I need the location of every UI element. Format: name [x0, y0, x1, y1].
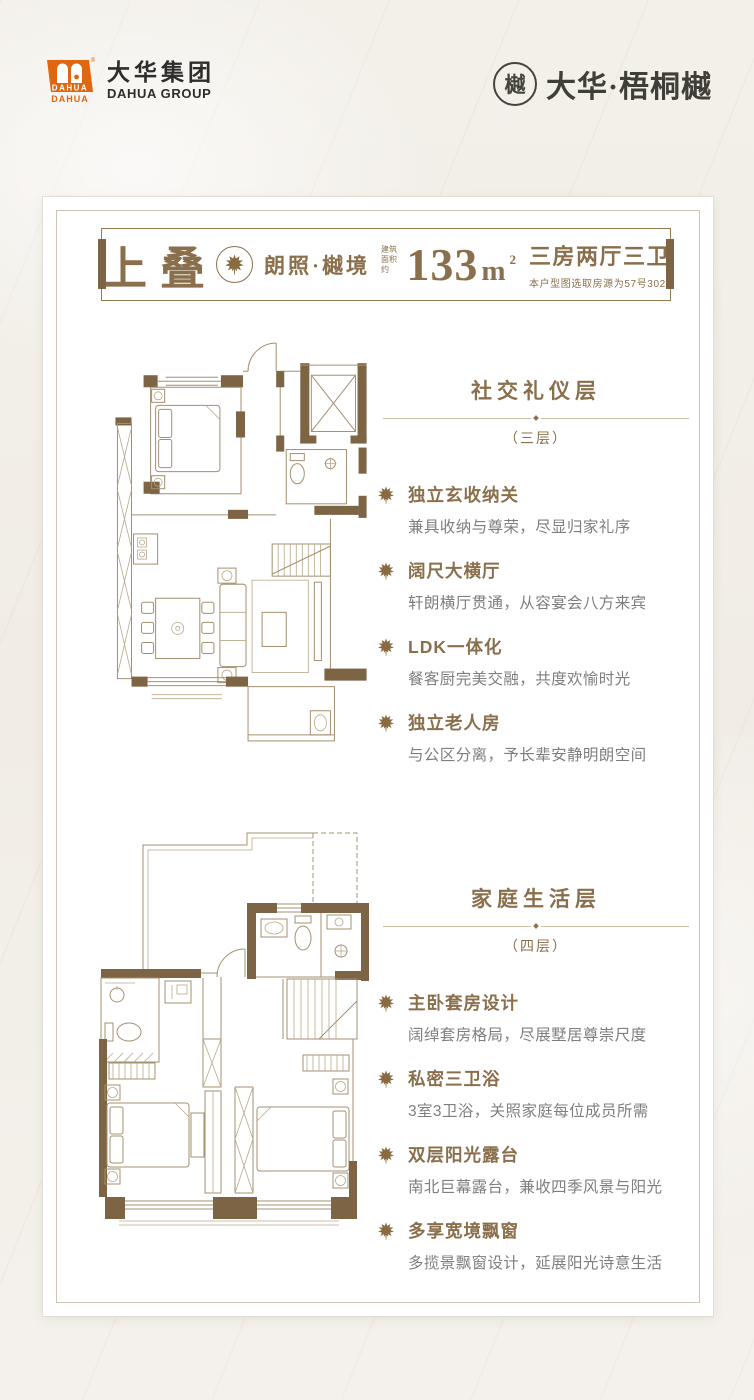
bed — [156, 405, 220, 471]
feature-item: 主卧套房设计 阔绰套房格局，尽展墅居尊崇尺度 — [377, 990, 695, 1045]
feature-title: 独立老人房 — [408, 710, 501, 735]
stairs-4f — [283, 979, 357, 1039]
bay-windows-4f — [105, 1197, 357, 1225]
feature-desc: 阔绰套房格局，尽展墅居尊崇尺度 — [408, 1023, 695, 1045]
floor-plan-3f — [107, 327, 367, 761]
feature-item: 多享宽境飘窗 多揽景飘窗设计，延展阳光诗意生活 — [377, 1218, 695, 1273]
leaf-bullet-icon — [377, 1222, 395, 1240]
area-superscript: 2 — [509, 252, 516, 268]
feature-item: 独立玄收纳关 兼具收纳与尊荣，尽显归家礼序 — [377, 482, 695, 537]
series-name: 朗照·樾境 — [264, 250, 370, 280]
side-window-strip — [115, 417, 131, 678]
feature-desc: 餐客厨完美交融，共度欢愉时光 — [408, 667, 695, 689]
dahua-logo-icon: DAHUA ® DAHUA — [44, 56, 96, 104]
entry-door — [243, 343, 300, 371]
title-banner: 上叠 朗照·樾境 建筑 面积约 133 m 2 三房两厅三卫 本户型图选取房源为… — [101, 228, 671, 301]
feature-title: 独立玄收纳关 — [408, 482, 519, 507]
section-title: 家庭生活层 — [377, 883, 695, 913]
feature-title: LDK一体化 — [408, 634, 502, 659]
floor-plan-4f — [95, 817, 381, 1259]
area-group: 建筑 面积约 133 m 2 — [381, 245, 516, 284]
svg-text:®: ® — [91, 57, 96, 64]
bathrooms-4f — [247, 903, 369, 981]
elevator — [300, 363, 366, 443]
balcony-3f — [132, 669, 367, 741]
feature-desc: 南北巨幕露台，兼收四季风景与阳光 — [408, 1175, 695, 1197]
dahua-name-en: DAHUA GROUP — [107, 87, 215, 101]
dahua-group-logo: DAHUA ® DAHUA 大华集团 DAHUA GROUP — [44, 56, 215, 104]
feature-item: LDK一体化 餐客厨完美交融，共度欢愉时光 — [377, 634, 695, 689]
bedroom-elder — [144, 375, 245, 494]
dining-table — [142, 598, 214, 658]
floor-label: （四层） — [377, 936, 695, 956]
feature-title: 主卧套房设计 — [408, 990, 519, 1015]
living-room — [218, 519, 331, 683]
leaf-bullet-icon — [377, 1070, 395, 1088]
leaf-badge-icon — [216, 246, 253, 283]
section-social-floor: 社交礼仪层 （三层） 独立玄收纳关 兼具收纳与尊荣，尽显归家礼序 阔尺大横厅 — [377, 375, 695, 786]
section-title: 社交礼仪层 — [377, 375, 695, 405]
poster-page: DAHUA ® DAHUA 大华集团 DAHUA GROUP 樾 大华·梧桐樾 … — [0, 0, 754, 1400]
svg-text:DAHUA: DAHUA — [51, 94, 89, 104]
floor-label: （三层） — [377, 428, 695, 448]
leaf-bullet-icon — [377, 994, 395, 1012]
feature-title: 阔尺大横厅 — [408, 558, 501, 583]
area-prefix: 建筑 面积约 — [381, 245, 403, 275]
feature-desc: 3室3卫浴，关照家庭每位成员所需 — [408, 1099, 695, 1121]
feature-item: 阔尺大横厅 轩朗横厅贯通，从容宴会八方来宾 — [377, 558, 695, 613]
stairs-3f — [272, 544, 330, 576]
leaf-bullet-icon — [377, 562, 395, 580]
divider — [383, 924, 689, 928]
feature-item: 独立老人房 与公区分离，予长辈安静明朗空间 — [377, 710, 695, 765]
section-family-floor: 家庭生活层 （四层） 主卧套房设计 阔绰套房格局，尽展墅居尊崇尺度 私密三卫浴 — [377, 883, 695, 1294]
leaf-bullet-icon — [377, 638, 395, 656]
area-unit: m — [481, 258, 505, 284]
feature-desc: 兼具收纳与尊荣，尽显归家礼序 — [408, 515, 695, 537]
product-type-label: 上叠 — [102, 232, 218, 297]
feature-desc: 轩朗横厅贯通，从容宴会八方来宾 — [408, 591, 695, 613]
feature-desc: 多揽景飘窗设计，延展阳光诗意生活 — [408, 1251, 695, 1273]
project-seal-icon: 樾 — [493, 62, 537, 106]
feature-title: 多享宽境飘窗 — [408, 1218, 519, 1243]
bathroom-left-4f — [101, 978, 159, 1063]
source-note: 本户型图选取房源为57号302 — [529, 275, 666, 290]
hall-door — [217, 949, 245, 977]
project-logo: 樾 大华·梧桐樾 — [493, 62, 712, 106]
leaf-bullet-icon — [377, 486, 395, 504]
feature-item: 双层阳光露台 南北巨幕露台，兼收四季风景与阳光 — [377, 1142, 695, 1197]
feature-item: 私密三卫浴 3室3卫浴，关照家庭每位成员所需 — [377, 1066, 695, 1121]
bedroom-second — [257, 1039, 357, 1197]
kitchen — [134, 534, 158, 564]
wardrobe-columns — [203, 1039, 253, 1193]
feature-title: 双层阳光露台 — [408, 1142, 519, 1167]
dahua-name-cn: 大华集团 — [107, 60, 215, 84]
floorplan-card: 上叠 朗照·樾境 建筑 面积约 133 m 2 三房两厅三卫 本户型图选取房源为… — [42, 196, 714, 1317]
svg-text:DAHUA: DAHUA — [52, 84, 88, 93]
feature-desc: 与公区分离，予长辈安静明朗空间 — [408, 743, 695, 765]
divider — [383, 416, 689, 420]
leaf-bullet-icon — [377, 1146, 395, 1164]
layout-label: 三房两厅三卫 — [529, 239, 670, 271]
bedroom-master — [99, 1039, 204, 1197]
hall-cabinet — [165, 981, 191, 1003]
leaf-bullet-icon — [377, 714, 395, 732]
area-value: 133 — [406, 245, 478, 284]
project-name: 大华·梧桐樾 — [546, 62, 712, 106]
feature-title: 私密三卫浴 — [408, 1066, 501, 1091]
